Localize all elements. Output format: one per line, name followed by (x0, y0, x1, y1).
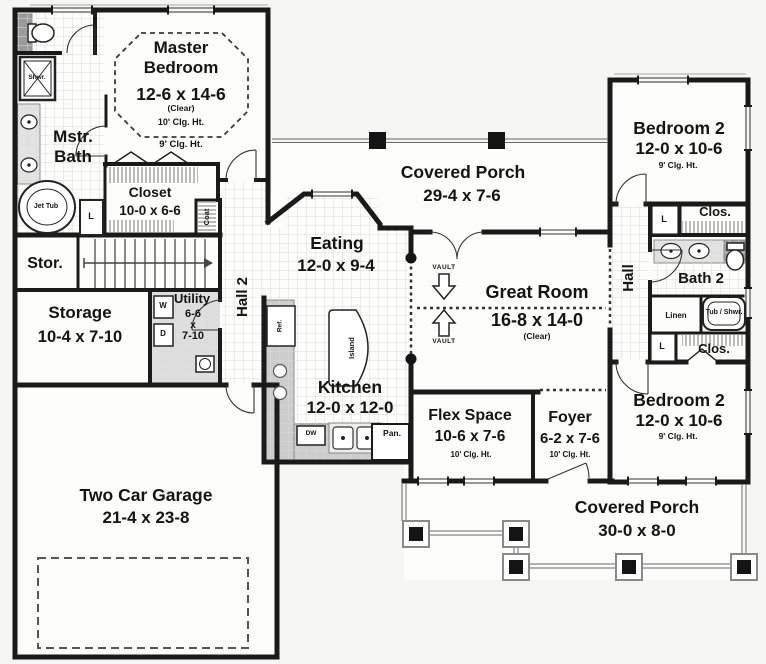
bedroom2-lower-ceiling-note: 9' Clg. Ht. (659, 432, 698, 441)
kitchen-dims: 12-0 x 12-0 (307, 399, 394, 417)
master-bedroom-label: Master Bedroom (120, 38, 242, 78)
floor-plan: Master Bedroom 12-6 x 14-6 (Clear) 10' C… (0, 0, 766, 664)
foyer-dims: 6-2 x 7-6 (540, 431, 600, 447)
vault-label-top: VAULT (432, 265, 455, 272)
bedroom2-upper-label: Bedroom 2 (633, 119, 724, 137)
great-room-clear-note: (Clear) (524, 332, 551, 341)
utility-dims-2: 7-10 (182, 331, 204, 343)
closet-abbr-upper: Clos. (699, 205, 731, 219)
utility-label: Utility (174, 292, 210, 306)
linen-l-label-upper: L (661, 215, 667, 224)
kitchen-label: Kitchen (318, 378, 382, 396)
water-heater (196, 356, 214, 372)
vault-label-bottom: VAULT (432, 339, 455, 346)
master-bedroom-clear-note: (Clear) (168, 104, 195, 113)
toilet-bath2 (727, 243, 745, 270)
flex-space-label: Flex Space (428, 408, 512, 425)
closet-dims: 10-0 x 6-6 (119, 204, 181, 218)
jet-tub-label: Jet Tub (34, 203, 58, 210)
linen-label: Linen (665, 312, 686, 320)
dryer-label: D (160, 330, 166, 338)
linen-l-label-master: L (88, 212, 94, 221)
garage-label: Two Car Garage (80, 486, 213, 504)
storage-dims: 10-4 x 7-10 (38, 329, 122, 346)
master-bath-label: Mstr. Bath (46, 127, 100, 167)
bedroom2-upper-ceiling-note: 9' Clg. Ht. (659, 161, 698, 170)
master-bedroom-ceiling2-note: 9' Clg. Ht. (159, 140, 202, 150)
pantry-label: Pan. (383, 429, 401, 438)
garage-dims: 21-4 x 23-8 (103, 509, 190, 527)
shower-label: Shwr. (28, 75, 45, 82)
closet-label: Closet (129, 185, 172, 200)
coat-closet-label: Coat (203, 209, 211, 226)
island-label: Island (348, 337, 356, 359)
opening-post-top (406, 253, 417, 264)
utility-dims-1: 6-6 (185, 309, 201, 321)
front-porch-dims: 30-0 x 8-0 (598, 522, 676, 540)
storage-label: Storage (48, 304, 111, 322)
bedroom2-lower-label: Bedroom 2 (633, 391, 724, 409)
closet-abbr-lower: Clos. (698, 342, 730, 356)
bedroom2-lower-dims: 12-0 x 10-6 (636, 412, 723, 430)
stor-label: Stor. (27, 256, 63, 273)
flex-space-ceiling-note: 10' Clg. Ht. (450, 451, 491, 459)
tub-shower-label: Tub / Shwr. (706, 309, 743, 316)
eating-dims: 12-0 x 9-4 (297, 257, 375, 275)
refrigerator-label: Ref. (278, 320, 285, 332)
master-bedroom-dims: 12-6 x 14-6 (136, 85, 226, 103)
rear-porch-label: Covered Porch (401, 163, 525, 181)
front-porch-label: Covered Porch (575, 498, 699, 516)
foyer-label: Foyer (548, 410, 592, 427)
bath2-label: Bath 2 (678, 271, 724, 287)
flex-space-dims: 10-6 x 7-6 (435, 429, 506, 445)
eating-label: Eating (310, 234, 363, 252)
foyer-ceiling-note: 10' Clg. Ht. (549, 451, 590, 459)
great-room-label: Great Room (485, 283, 588, 302)
hall2-label: Hall 2 (235, 277, 251, 317)
bedroom2-upper-dims: 12-0 x 10-6 (636, 140, 723, 158)
opening-post-bottom (406, 354, 417, 365)
master-bedroom-ceiling-note: 10' Clg. Ht. (158, 118, 204, 127)
linen-l-label-lower: L (659, 342, 665, 351)
hall-label: Hall (621, 264, 637, 292)
great-room-dims: 16-8 x 14-0 (491, 311, 583, 330)
dishwasher-label: DW (306, 431, 317, 438)
stairs (80, 238, 213, 288)
toilet-master (28, 24, 54, 42)
washer-label: W (159, 302, 167, 310)
rear-porch-dims: 29-4 x 7-6 (423, 187, 501, 205)
